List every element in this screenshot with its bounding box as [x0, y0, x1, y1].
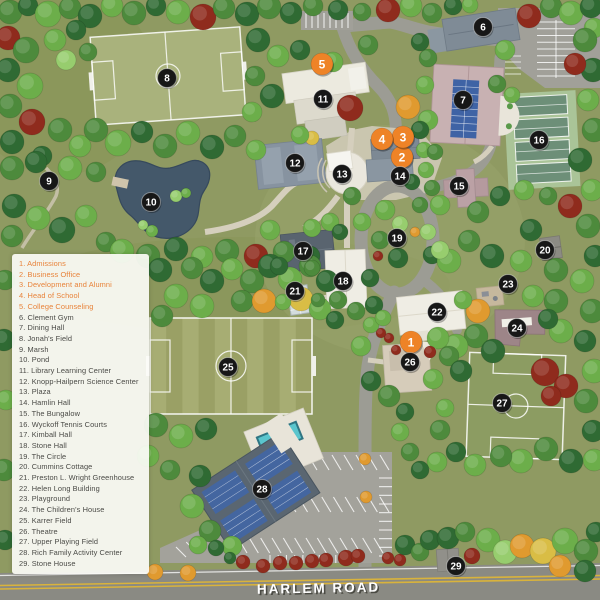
legend-item-26: 26. Theatre [19, 527, 145, 538]
legend-item-23: 23. Playground [19, 494, 145, 505]
legend-item-16: 16. Wyckoff Tennis Courts [19, 420, 145, 431]
marker-number: 12 [289, 159, 301, 170]
marker-number: 19 [391, 234, 403, 245]
legend-item-22: 22. Helen Long Building [19, 484, 145, 495]
legend-item-21: 21. Preston L. Wright Greenhouse [19, 473, 145, 484]
marker-number: 25 [222, 363, 234, 374]
legend-item-5: 5. College Counseling [19, 302, 145, 313]
map-legend: 1. Admissions2. Business Office3. Develo… [12, 254, 149, 574]
library-tower [348, 66, 367, 90]
legend-item-17: 17. Kimball Hall [19, 430, 145, 441]
marker-number: 6 [480, 23, 486, 34]
legend-item-2: 2. Business Office [19, 270, 145, 281]
marker-number: 7 [460, 96, 466, 107]
legend-item-18: 18. Stone Hall [19, 441, 145, 452]
marker-number: 11 [318, 95, 329, 106]
marker-number: 13 [336, 170, 348, 181]
legend-item-19: 19. The Circle [19, 452, 145, 463]
marker-number: 1 [408, 335, 415, 349]
marker-number: 3 [400, 130, 407, 144]
legend-item-15: 15. The Bungalow [19, 409, 145, 420]
marker-number: 28 [256, 485, 268, 496]
marker-number: 5 [319, 57, 326, 71]
legend-item-29: 29. Stone House [19, 559, 145, 570]
playground-equipment-1 [482, 291, 489, 297]
marker-number: 22 [431, 308, 443, 319]
legend-item-25: 25. Karrer Field [19, 516, 145, 527]
marker-number: 17 [297, 247, 309, 258]
legend-item-28: 28. Rich Family Activity Center [19, 548, 145, 559]
path-library-plaza [350, 128, 352, 152]
karrer-stripe-5 [280, 318, 296, 414]
marker-number: 4 [379, 132, 386, 146]
marker-number: 27 [496, 399, 508, 410]
legend-item-1: 1. Admissions [19, 259, 145, 270]
legend-list: 1. Admissions2. Business Office3. Develo… [19, 259, 145, 569]
legend-item-4: 4. Head of School [19, 291, 145, 302]
legend-item-14: 14. Hamlin Hall [19, 398, 145, 409]
karrer-stripe-2 [182, 318, 198, 414]
legend-item-9: 9. Marsh [19, 345, 145, 356]
marker-number: 20 [539, 246, 551, 257]
legend-item-7: 7. Dining Hall [19, 323, 145, 334]
karrer-stripe-1 [150, 318, 166, 414]
marker-number: 15 [453, 182, 465, 193]
legend-item-8: 8. Jonah's Field [19, 334, 145, 345]
legend-item-6: 6. Clement Gym [19, 313, 145, 324]
marker-number: 18 [337, 277, 349, 288]
legend-item-11: 11. Library Learning Center [19, 366, 145, 377]
campus-map: HARLEM ROADHARLEM ROAD123456789101112131… [0, 0, 600, 600]
marker-number: 9 [46, 177, 52, 188]
karrer-stripe-4 [247, 318, 263, 414]
legend-item-12: 12. Knopp-Hailpern Science Center [19, 377, 145, 388]
legend-item-10: 10. Pond [19, 355, 145, 366]
marker-number: 8 [164, 74, 170, 85]
legend-item-24: 24. The Children's House [19, 505, 145, 516]
marker-number: 29 [450, 562, 462, 573]
harlem-road-label: HARLEM ROAD [257, 580, 380, 597]
marker-number: 16 [533, 136, 545, 147]
marker-number: 21 [289, 287, 301, 298]
marker-number: 10 [145, 198, 157, 209]
marker-number: 24 [511, 324, 523, 335]
marker-number: 14 [394, 172, 406, 183]
path-theatre-entry [368, 360, 384, 362]
karrer-goal-right [312, 356, 316, 376]
legend-item-3: 3. Development and Alumni [19, 280, 145, 291]
marker-number: 2 [399, 150, 406, 164]
legend-item-20: 20. Cummins Cottage [19, 462, 145, 473]
legend-item-27: 27. Upper Playing Field [19, 537, 145, 548]
marker-number: 23 [502, 280, 514, 291]
legend-item-13: 13. Plaza [19, 387, 145, 398]
marker-number: 26 [404, 358, 416, 369]
